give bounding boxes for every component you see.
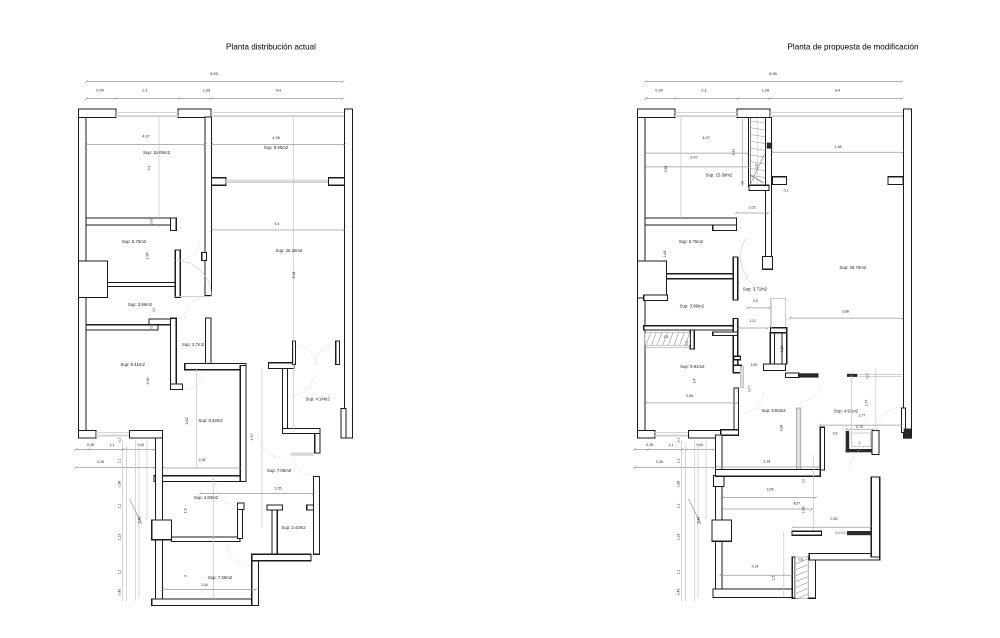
svg-text:0,1: 0,1	[117, 438, 121, 443]
svg-text:Sup: 15.09m2: Sup: 15.09m2	[706, 173, 733, 178]
svg-text:2: 2	[184, 575, 188, 577]
svg-text:Planta de propuesta de modific: Planta de propuesta de modificación	[788, 43, 919, 52]
svg-text:Sup: 5.75m2: Sup: 5.75m2	[122, 239, 147, 244]
svg-text:Sup: 7.36m2: Sup: 7.36m2	[208, 575, 233, 580]
svg-text:Sup: 3.7m2: Sup: 3.7m2	[182, 342, 205, 347]
svg-text:Sup: 3.96m2: Sup: 3.96m2	[128, 302, 153, 307]
svg-text:Sup: 8.43m2: Sup: 8.43m2	[198, 418, 223, 423]
svg-text:2,1: 2,1	[142, 89, 147, 93]
svg-text:1,05: 1,05	[750, 363, 757, 367]
svg-text:0,75: 0,75	[856, 425, 863, 429]
svg-text:4,07: 4,07	[142, 135, 149, 139]
svg-text:1,95: 1,95	[146, 253, 150, 260]
svg-text:4,4: 4,4	[835, 89, 840, 93]
svg-text:0,9: 0,9	[833, 432, 838, 436]
svg-text:2,26: 2,26	[656, 460, 663, 464]
svg-text:4,4: 4,4	[275, 222, 280, 226]
svg-text:3,25: 3,25	[767, 488, 774, 492]
svg-text:2,77: 2,77	[859, 414, 866, 418]
svg-text:0,6: 0,6	[798, 558, 803, 562]
svg-text:1,77: 1,77	[865, 400, 869, 407]
svg-text:0,42: 0,42	[117, 589, 121, 596]
svg-text:3,88: 3,88	[842, 310, 849, 314]
svg-text:0,38: 0,38	[676, 481, 680, 488]
svg-text:Planta distribución actual: Planta distribución actual	[226, 43, 316, 52]
svg-text:3,4: 3,4	[147, 166, 151, 171]
svg-text:Sup: 9.91m2: Sup: 9.91m2	[680, 364, 705, 369]
svg-text:3,18: 3,18	[763, 460, 770, 464]
svg-text:3,58: 3,58	[664, 166, 668, 173]
svg-text:Sup: 3.99m2: Sup: 3.99m2	[680, 304, 705, 309]
svg-text:Sup: 5.75m2: Sup: 5.75m2	[679, 239, 704, 244]
svg-text:1,02: 1,02	[749, 206, 756, 210]
svg-text:2,04: 2,04	[201, 583, 208, 587]
svg-text:1,1: 1,1	[110, 443, 115, 447]
svg-text:4,4: 4,4	[276, 89, 281, 93]
svg-text:1,13: 1,13	[117, 534, 121, 541]
svg-text:0,07: 0,07	[866, 373, 870, 379]
svg-text:1,12: 1,12	[749, 319, 756, 323]
svg-text:1,13: 1,13	[676, 534, 680, 541]
svg-text:1,1: 1,1	[676, 570, 680, 575]
svg-text:2,26: 2,26	[97, 460, 104, 464]
svg-text:5,36: 5,36	[138, 517, 142, 524]
svg-text:0,81: 0,81	[697, 443, 704, 447]
svg-text:1,1: 1,1	[676, 504, 680, 509]
svg-text:2,35: 2,35	[275, 487, 282, 491]
svg-text:4,57: 4,57	[250, 434, 254, 441]
svg-text:Sup: 4.83m2: Sup: 4.83m2	[194, 495, 219, 500]
svg-text:3,62: 3,62	[185, 418, 189, 425]
svg-text:2,56: 2,56	[686, 394, 693, 398]
svg-text:1,64: 1,64	[663, 251, 667, 258]
svg-text:1,5: 1,5	[184, 509, 188, 514]
svg-text:0,07: 0,07	[748, 386, 752, 392]
svg-text:Sup: 8.90m2: Sup: 8.90m2	[264, 145, 289, 150]
svg-text:4,38: 4,38	[835, 145, 842, 149]
svg-text:0,06: 0,06	[150, 324, 154, 331]
svg-text:1,1: 1,1	[117, 504, 121, 509]
svg-text:1,1: 1,1	[669, 443, 674, 447]
svg-text:2,04: 2,04	[199, 458, 206, 462]
svg-text:Sup: 4.91m2: Sup: 4.91m2	[834, 409, 859, 414]
svg-text:5,91: 5,91	[292, 272, 296, 279]
svg-text:Sup: 7.05m2: Sup: 7.05m2	[267, 468, 292, 473]
svg-text:0,35: 0,35	[646, 443, 653, 447]
svg-text:8,55: 8,55	[769, 72, 776, 76]
svg-text:1,1: 1,1	[676, 459, 680, 464]
svg-text:0,38: 0,38	[117, 481, 121, 488]
svg-text:0,42: 0,42	[676, 589, 680, 596]
svg-text:Sup: 2.43m2: Sup: 2.43m2	[281, 525, 306, 530]
svg-text:4,07: 4,07	[702, 136, 709, 140]
svg-text:0,06: 0,06	[150, 219, 154, 226]
svg-text:4,97: 4,97	[793, 502, 800, 506]
svg-text:1,5: 1,5	[664, 335, 669, 339]
svg-text:0,6: 0,6	[685, 341, 689, 346]
svg-text:2,1: 2,1	[701, 89, 706, 93]
svg-text:1,5: 1,5	[772, 576, 776, 581]
svg-text:Sup: 9.41m2: Sup: 9.41m2	[121, 362, 146, 367]
svg-text:Sup: 8.83m2: Sup: 8.83m2	[761, 408, 786, 413]
svg-text:2,31: 2,31	[732, 149, 736, 156]
svg-text:1,1: 1,1	[117, 570, 121, 575]
svg-text:4,38: 4,38	[272, 136, 279, 140]
svg-text:1,06: 1,06	[203, 89, 210, 93]
svg-text:Sup: 36.75m2: Sup: 36.75m2	[839, 265, 866, 270]
svg-text:2,63: 2,63	[831, 517, 838, 521]
svg-text:1,12: 1,12	[780, 346, 784, 353]
svg-text:0,81: 0,81	[138, 443, 145, 447]
svg-text:2,34: 2,34	[752, 565, 759, 569]
svg-text:0,99: 0,99	[96, 89, 103, 93]
svg-text:88: 88	[858, 441, 862, 445]
svg-text:5,36: 5,36	[697, 517, 701, 524]
svg-text:Sup: 26.32m2: Sup: 26.32m2	[276, 248, 303, 253]
svg-text:0,35: 0,35	[87, 443, 94, 447]
svg-text:0,1: 0,1	[784, 189, 789, 193]
svg-text:0,1: 0,1	[676, 438, 680, 443]
svg-text:1,06: 1,06	[762, 89, 769, 93]
svg-text:Sup: 4.14m2: Sup: 4.14m2	[305, 397, 330, 402]
svg-text:0,3: 0,3	[736, 388, 740, 393]
svg-text:3,36: 3,36	[146, 378, 150, 385]
svg-text:0,5: 0,5	[753, 299, 758, 303]
svg-text:0,9: 0,9	[152, 308, 156, 313]
svg-text:Sup: 15.06m2: Sup: 15.06m2	[143, 150, 170, 155]
svg-text:0,99: 0,99	[655, 89, 662, 93]
svg-text:3,34: 3,34	[780, 425, 784, 432]
svg-text:0,6: 0,6	[802, 479, 806, 484]
svg-text:1,1: 1,1	[117, 459, 121, 464]
svg-text:3,4: 3,4	[693, 379, 697, 384]
svg-text:8,55: 8,55	[210, 72, 217, 76]
svg-text:0,9: 0,9	[755, 164, 759, 169]
svg-text:3,47: 3,47	[690, 156, 697, 160]
svg-text:Sup: 3.71m2: Sup: 3.71m2	[743, 287, 768, 292]
svg-text:1,69: 1,69	[802, 507, 806, 514]
